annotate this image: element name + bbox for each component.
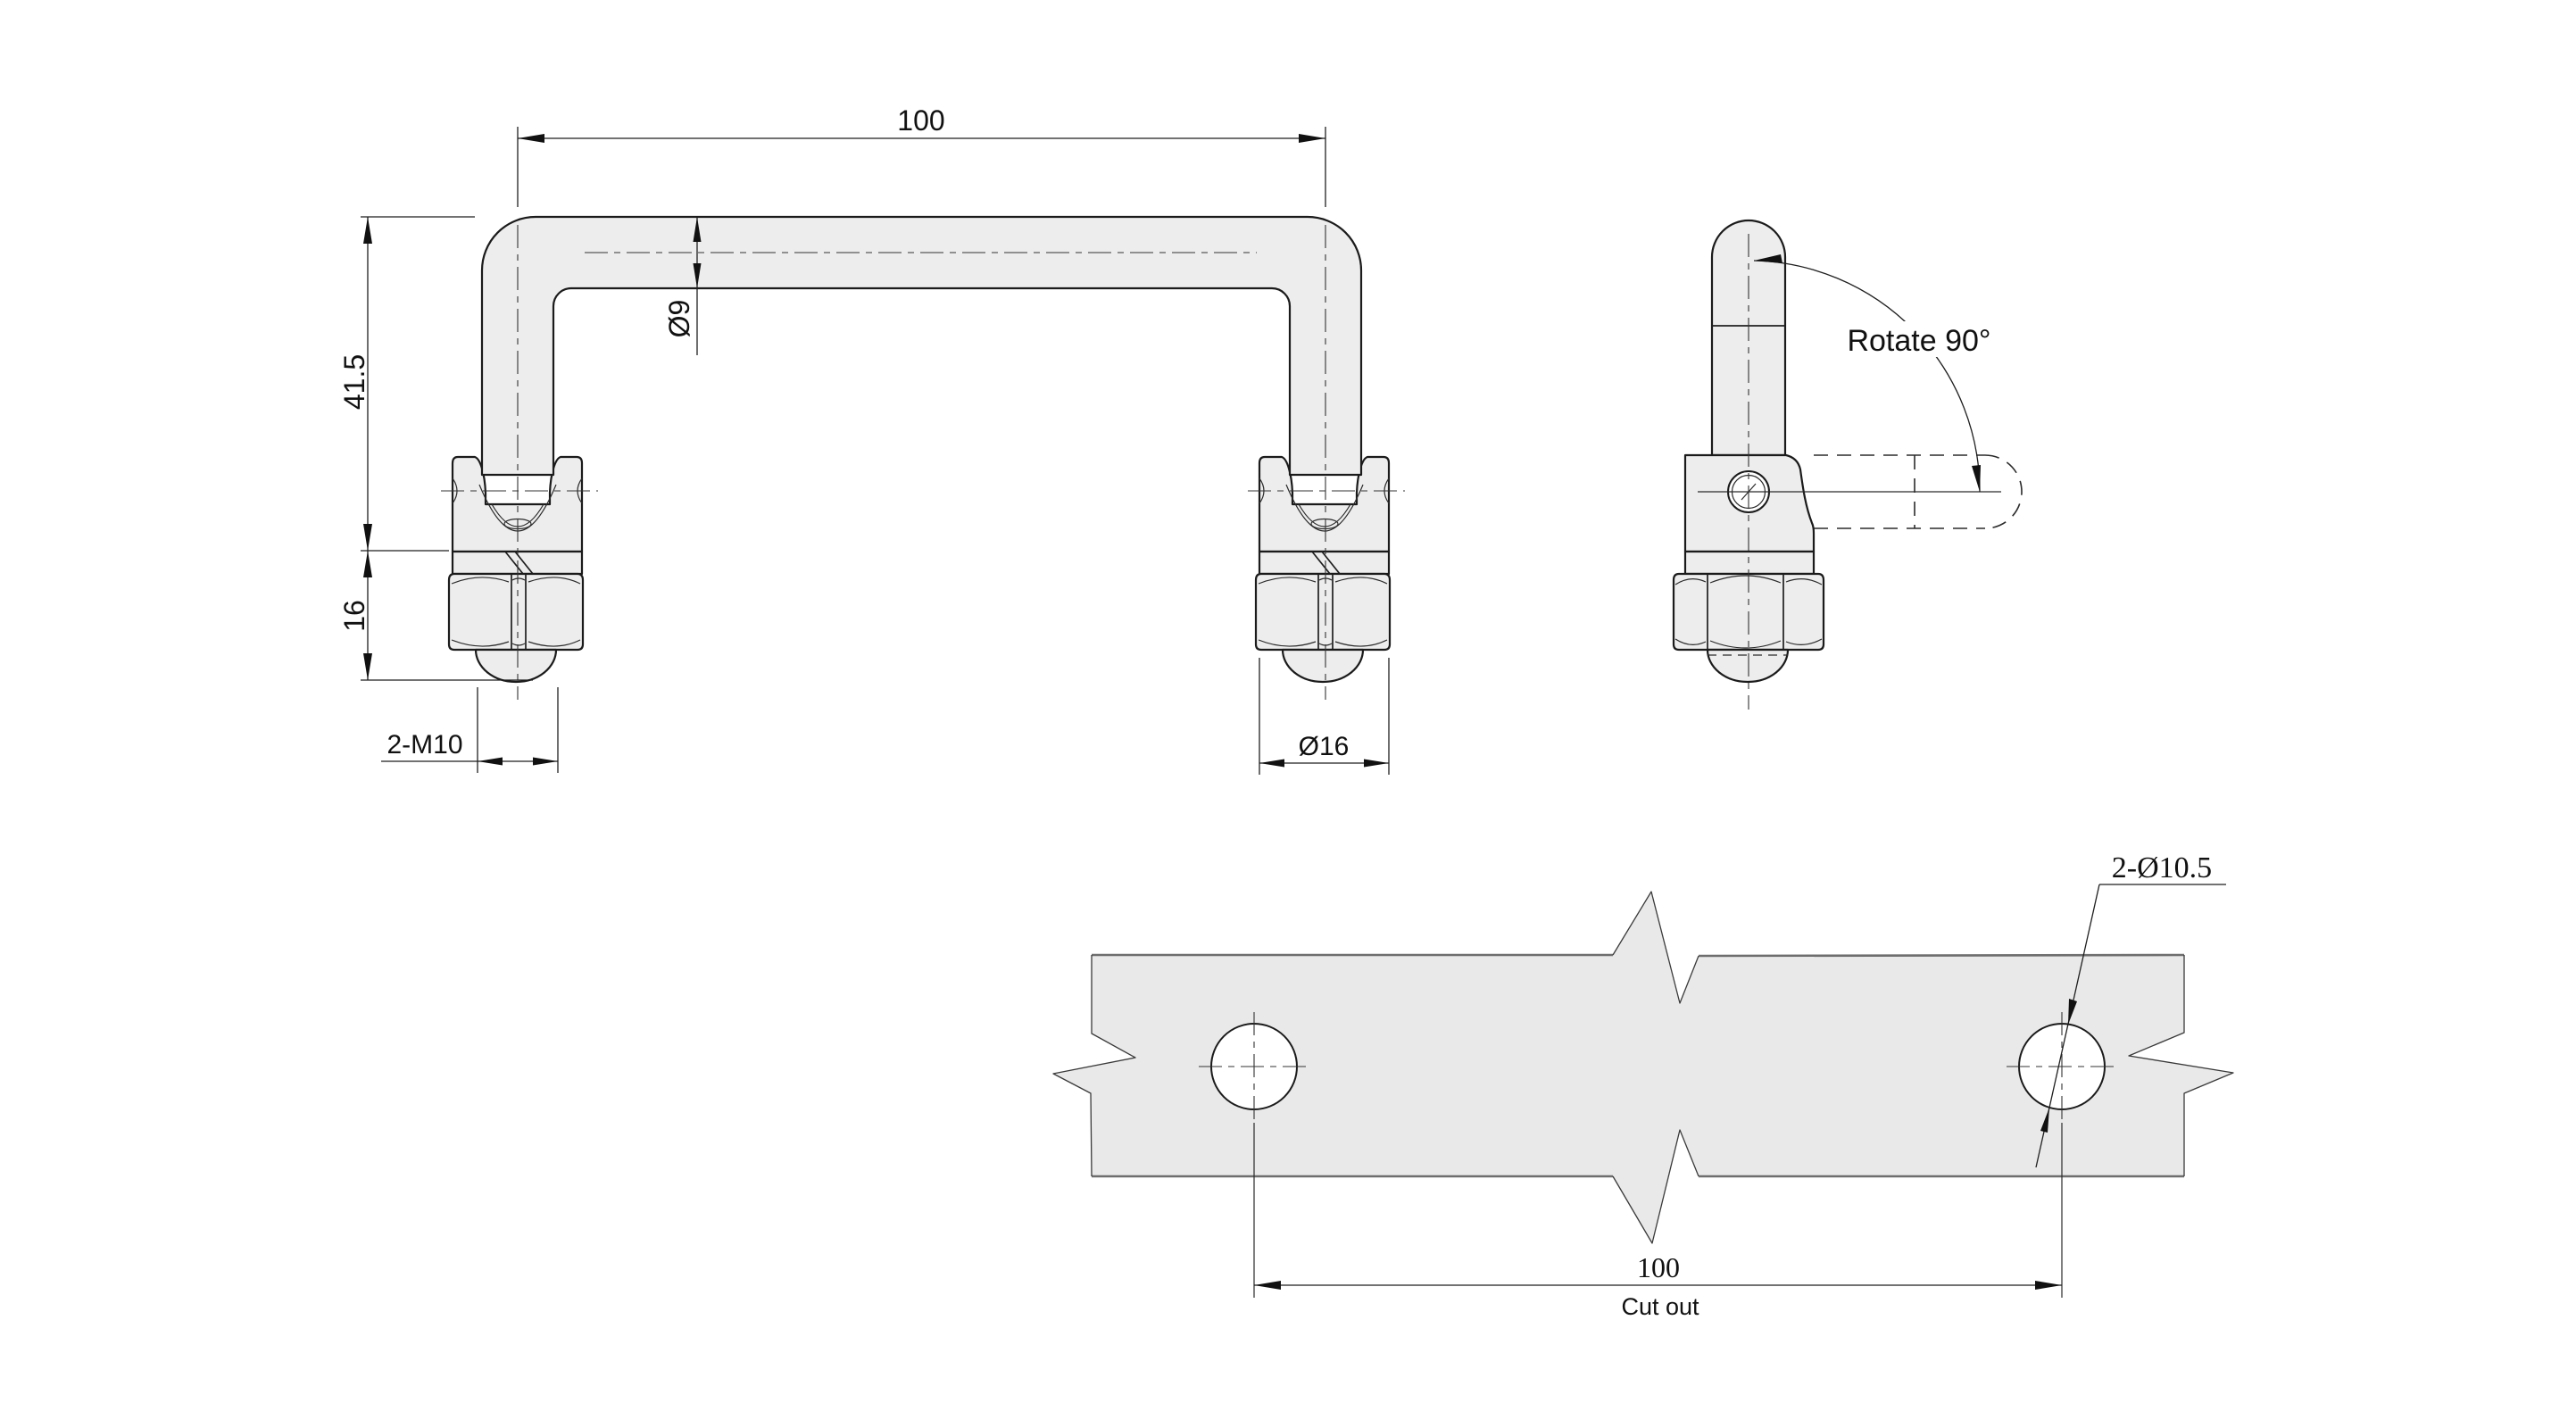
dim-base-label: 16 [338, 600, 370, 632]
technical-drawing: 100 41.5 16 Ø9 [0, 0, 2576, 1428]
dim-width-100: 100 [518, 104, 1325, 207]
front-view: 100 41.5 16 Ø9 [338, 104, 1405, 775]
cutout-label: Cut out [1621, 1293, 1699, 1320]
cutout-view: 2-Ø10.5 100 Cut out [1053, 851, 2233, 1320]
dim-hole-dia-label: 2-Ø10.5 [2112, 851, 2212, 884]
base-assembly-right [1248, 457, 1405, 682]
side-view: Rotate 90° [1674, 220, 2022, 710]
hex-nut [449, 574, 583, 650]
ball-end [476, 650, 556, 682]
dim-thread-label: 2-M10 [386, 730, 462, 760]
dim-hole-spacing-label: 100 [1637, 1251, 1680, 1283]
drawing-canvas: 100 41.5 16 Ø9 [0, 0, 2576, 1428]
handle-tube [482, 217, 1361, 475]
dim-thread-2-m10: 2-M10 [381, 687, 558, 773]
dim-boss-dia-label: Ø16 [1299, 732, 1350, 761]
dim-width-label: 100 [897, 104, 944, 137]
rotate-label: Rotate 90° [1847, 324, 1990, 358]
dim-height-label: 41.5 [338, 354, 370, 410]
side-collar [1685, 552, 1814, 574]
dim-hole-spacing: 100 Cut out [1254, 1251, 2062, 1320]
base-assembly [441, 457, 598, 682]
dim-tube-dia-label: Ø9 [663, 300, 695, 338]
